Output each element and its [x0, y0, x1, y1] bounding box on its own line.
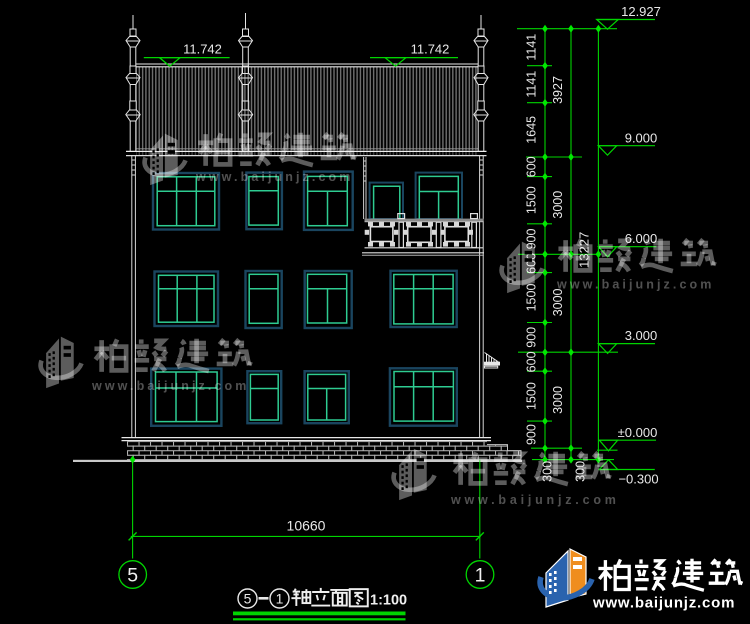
svg-text:600: 600	[525, 351, 539, 372]
svg-text:3.000: 3.000	[625, 328, 658, 343]
svg-text:www.baijunjz.com: www.baijunjz.com	[592, 595, 735, 612]
svg-text:11.742: 11.742	[183, 42, 222, 57]
svg-text:900: 900	[525, 424, 539, 445]
svg-text:1645: 1645	[525, 116, 539, 144]
svg-text:10660: 10660	[287, 518, 326, 534]
svg-text:900: 900	[525, 327, 539, 348]
svg-text:1500: 1500	[525, 382, 539, 410]
svg-text:−0.300: −0.300	[618, 472, 658, 487]
svg-text:www.baijunjz.com: www.baijunjz.com	[556, 278, 714, 292]
svg-text:www.baijunjz.com: www.baijunjz.com	[450, 493, 620, 507]
svg-text:1500: 1500	[525, 186, 539, 214]
svg-text:1141: 1141	[525, 71, 539, 98]
svg-text:6.000: 6.000	[625, 231, 658, 246]
svg-text:1: 1	[475, 565, 486, 587]
svg-text:9.000: 9.000	[625, 131, 658, 146]
svg-text:www.baijunjz.com: www.baijunjz.com	[91, 379, 249, 393]
svg-text:5: 5	[127, 565, 138, 587]
svg-text:1:100: 1:100	[370, 593, 407, 609]
svg-text:1500: 1500	[525, 284, 539, 312]
svg-text:±0.000: ±0.000	[618, 425, 658, 440]
svg-text:1: 1	[276, 591, 284, 607]
svg-text:3000: 3000	[551, 191, 565, 219]
svg-text:12.927: 12.927	[621, 4, 661, 19]
svg-text:3000: 3000	[551, 288, 565, 316]
svg-text:5: 5	[244, 591, 252, 607]
svg-text:3000: 3000	[551, 386, 565, 414]
svg-text:11.742: 11.742	[411, 42, 450, 57]
svg-text:3927: 3927	[551, 76, 565, 104]
svg-text:www.baijunjz.com: www.baijunjz.com	[195, 170, 353, 184]
svg-text:1141: 1141	[525, 34, 539, 61]
svg-text:600: 600	[525, 156, 539, 177]
